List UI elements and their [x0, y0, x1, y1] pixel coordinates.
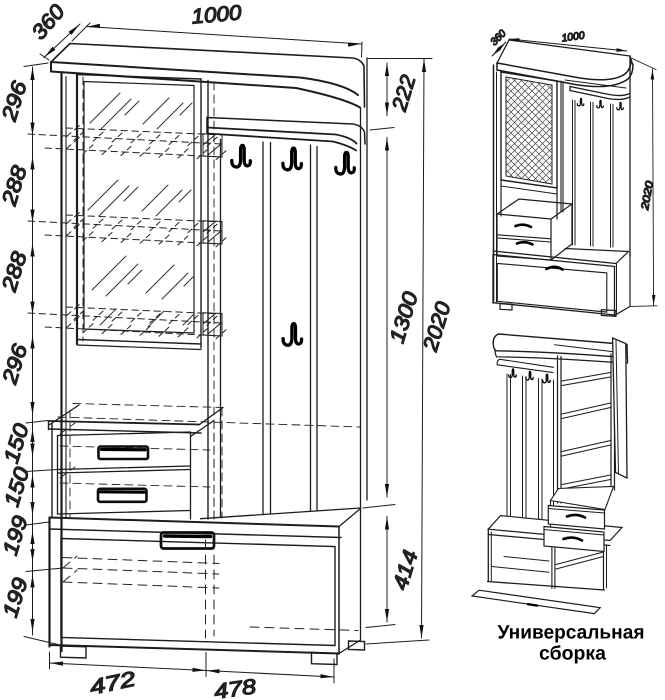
svg-text:1000: 1000 — [191, 1, 243, 28]
svg-text:296: 296 — [0, 78, 32, 124]
svg-text:360: 360 — [27, 0, 69, 44]
svg-text:1000: 1000 — [561, 29, 586, 44]
svg-text:222: 222 — [388, 72, 421, 114]
svg-text:150: 150 — [0, 421, 34, 466]
svg-text:296: 296 — [0, 341, 32, 387]
svg-text:199: 199 — [0, 513, 33, 558]
svg-text:288: 288 — [0, 163, 32, 209]
svg-text:478: 478 — [213, 675, 258, 700]
svg-text:472: 472 — [88, 668, 138, 700]
svg-text:1300: 1300 — [386, 289, 423, 346]
svg-text:288: 288 — [0, 249, 32, 295]
svg-text:сборка: сборка — [539, 643, 606, 665]
svg-text:414: 414 — [389, 548, 423, 593]
svg-text:199: 199 — [0, 575, 33, 620]
svg-text:2020: 2020 — [419, 299, 456, 355]
svg-text:Универсальная: Универсальная — [498, 622, 645, 644]
svg-text:150: 150 — [0, 464, 34, 509]
